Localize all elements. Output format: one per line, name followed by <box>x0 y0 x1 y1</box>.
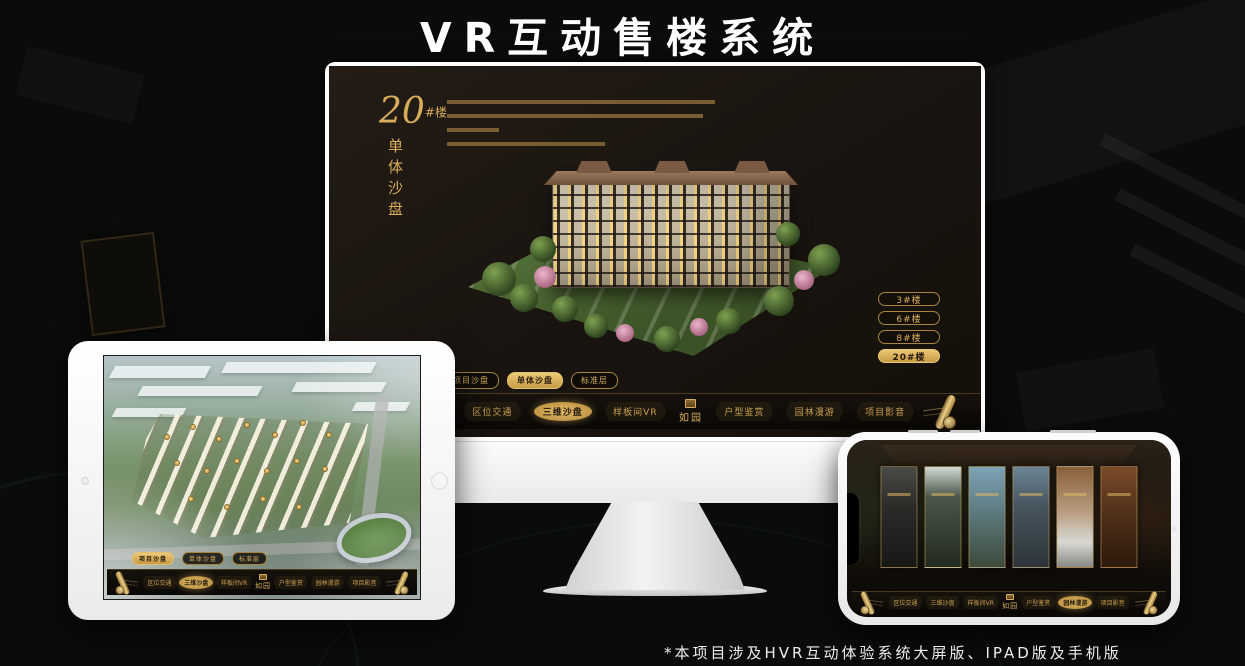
scene-panel-autumn[interactable] <box>1057 466 1094 568</box>
floor-button-6[interactable]: 6#楼 <box>878 311 940 325</box>
phone-camera <box>1172 526 1177 531</box>
scene-panel-tower[interactable] <box>1013 466 1050 568</box>
model-tree-pink <box>690 318 708 336</box>
scene-panel-gate[interactable] <box>881 466 918 568</box>
tablet-device: 项目沙盘 单体沙盘 标准层 区位交通 三维沙盘 样板间VR 如园 户型鉴赏 园林… <box>68 341 455 620</box>
tab-single-sandtable[interactable]: 单体沙盘 <box>182 552 224 565</box>
nav-item-showroom-vr[interactable]: 样板间VR <box>216 576 252 589</box>
building-marker[interactable] <box>174 460 180 466</box>
nav-item-unit-gallery[interactable]: 户型鉴赏 <box>274 576 308 589</box>
description-line <box>447 100 715 104</box>
scroll-menu-icon[interactable] <box>389 572 409 594</box>
aerial-building <box>137 386 262 396</box>
model-tree <box>530 236 556 262</box>
nav-item-3d-sandtable[interactable]: 三维沙盘 <box>179 576 213 589</box>
bg-road-strip <box>1130 243 1245 359</box>
brand-logo-icon <box>1006 594 1014 600</box>
model-tree <box>808 244 840 276</box>
building-marker[interactable] <box>234 458 240 464</box>
model-facade <box>552 182 790 288</box>
scene-panel-masterplan[interactable] <box>969 466 1006 568</box>
headline-number: 20 <box>379 91 425 132</box>
model-tree-pink <box>616 324 634 342</box>
model-tree <box>716 308 742 334</box>
nav-item-garden-tour[interactable]: 园林漫游 <box>786 402 844 421</box>
model-tree <box>510 284 538 312</box>
phone-nav-bar: 区位交通 三维沙盘 样板间VR 如园 户型鉴赏 园林漫游 项目影音 <box>852 591 1166 613</box>
scroll-menu-icon[interactable] <box>115 572 135 594</box>
headline-suffix: #楼 <box>425 106 447 120</box>
tablet-tab-row: 项目沙盘 单体沙盘 标准层 <box>132 552 267 565</box>
nav-item-unit-gallery[interactable]: 户型鉴赏 <box>1021 596 1055 609</box>
tablet-home-button[interactable] <box>431 472 448 489</box>
tablet-screen: 项目沙盘 单体沙盘 标准层 区位交通 三维沙盘 样板间VR 如园 户型鉴赏 园林… <box>103 355 421 600</box>
description-line <box>447 142 605 146</box>
description-text-block <box>447 100 715 156</box>
phone-notch <box>847 493 859 565</box>
aerial-residential-complex[interactable] <box>132 414 368 538</box>
nav-item-project-video[interactable]: 项目影音 <box>1096 596 1130 609</box>
building-marker[interactable] <box>294 458 300 464</box>
building-model[interactable] <box>464 166 844 366</box>
phone-volume-button <box>950 430 980 433</box>
model-tree-pink <box>534 266 556 288</box>
building-marker[interactable] <box>322 466 328 472</box>
model-tree-pink <box>794 270 814 290</box>
aerial-building <box>221 362 377 373</box>
description-line <box>447 128 499 132</box>
building-marker[interactable] <box>204 468 210 474</box>
model-building <box>552 182 790 288</box>
nav-item-project-video[interactable]: 项目影音 <box>347 576 381 589</box>
bg-signboard <box>80 232 165 336</box>
nav-item-garden-tour[interactable]: 园林漫游 <box>311 576 345 589</box>
page-title: VR互动售楼系统 <box>0 4 1245 64</box>
tab-standard-floor[interactable]: 标准层 <box>232 552 267 565</box>
building-marker[interactable] <box>224 504 230 510</box>
description-line <box>447 114 703 118</box>
phone-power-button <box>1050 430 1096 433</box>
building-marker[interactable] <box>272 432 278 438</box>
brand-logo[interactable]: 如园 <box>1002 594 1018 611</box>
brand-logo[interactable]: 如园 <box>679 399 703 424</box>
model-tree <box>764 286 794 316</box>
building-marker[interactable] <box>260 496 266 502</box>
headline-block: 20#楼 单体沙盘 <box>379 94 447 222</box>
brand-logo[interactable]: 如园 <box>255 574 271 591</box>
tab-single-sandtable[interactable]: 单体沙盘 <box>507 372 563 389</box>
nav-item-3d-sandtable[interactable]: 三维沙盘 <box>534 402 592 421</box>
phone-volume-button <box>908 430 938 433</box>
bg-building-block <box>1016 348 1164 431</box>
brand-logo-text: 如园 <box>255 581 271 591</box>
headline-subtitle: 单体沙盘 <box>385 138 406 222</box>
nav-item-unit-gallery[interactable]: 户型鉴赏 <box>715 402 773 421</box>
building-marker[interactable] <box>190 424 196 430</box>
brand-logo-icon <box>685 399 696 408</box>
model-roof-cap <box>576 161 612 173</box>
brand-logo-text: 如园 <box>679 409 703 424</box>
phone-device: 区位交通 三维沙盘 样板间VR 如园 户型鉴赏 园林漫游 项目影音 <box>838 432 1180 625</box>
promo-canvas: VR互动售楼系统 20#楼 单体沙盘 <box>0 0 1245 666</box>
model-tree <box>654 326 680 352</box>
model-roof-cap <box>654 161 690 173</box>
tab-standard-floor[interactable]: 标准层 <box>571 372 618 389</box>
tablet-nav-bar: 区位交通 三维沙盘 样板间VR 如园 户型鉴赏 园林漫游 项目影音 <box>107 569 417 595</box>
floor-button-8[interactable]: 8#楼 <box>878 330 940 344</box>
scene-panel-gallery <box>881 466 1138 568</box>
model-tree <box>552 296 578 322</box>
floor-button-group: 3#楼 6#楼 8#楼 20#楼 <box>878 292 940 363</box>
brand-logo-icon <box>259 574 267 580</box>
building-marker[interactable] <box>296 504 302 510</box>
model-roof <box>544 171 798 185</box>
phone-screen: 区位交通 三维沙盘 样板间VR 如园 户型鉴赏 园林漫游 项目影音 <box>847 440 1171 617</box>
brand-logo-text: 如园 <box>1002 601 1018 611</box>
nav-item-garden-tour[interactable]: 园林漫游 <box>1058 596 1092 609</box>
nav-item-location[interactable]: 区位交通 <box>463 402 521 421</box>
scroll-menu-icon[interactable] <box>860 592 880 614</box>
nav-item-project-video[interactable]: 项目影音 <box>856 402 914 421</box>
model-tree <box>776 222 800 246</box>
building-marker[interactable] <box>300 420 306 426</box>
floor-button-3[interactable]: 3#楼 <box>878 292 940 306</box>
nav-item-location[interactable]: 区位交通 <box>143 576 177 589</box>
nav-item-3d-sandtable[interactable]: 三维沙盘 <box>925 596 959 609</box>
scroll-menu-icon[interactable] <box>1138 592 1158 614</box>
tablet-camera <box>81 477 89 485</box>
scene-panel-interior[interactable] <box>1101 466 1138 568</box>
aerial-building <box>291 382 386 392</box>
model-roof-cap <box>734 161 770 173</box>
tab-project-sandtable[interactable]: 项目沙盘 <box>132 552 174 565</box>
building-marker[interactable] <box>326 432 332 438</box>
building-marker[interactable] <box>264 468 270 474</box>
building-marker[interactable] <box>216 436 222 442</box>
building-marker[interactable] <box>244 422 250 428</box>
nav-item-showroom-vr[interactable]: 样板间VR <box>963 596 999 609</box>
monitor-tab-row: 项目沙盘 单体沙盘 标准层 <box>443 372 618 389</box>
model-tree <box>584 314 608 338</box>
monitor-stand <box>565 502 745 590</box>
building-marker[interactable] <box>164 434 170 440</box>
scene-panel-courtyard[interactable] <box>925 466 962 568</box>
footnote-text: *本项目涉及HVR互动体验系统大屏版、IPAD版及手机版 <box>664 642 1122 663</box>
nav-item-location[interactable]: 区位交通 <box>888 596 922 609</box>
floor-button-20[interactable]: 20#楼 <box>878 349 940 363</box>
building-marker[interactable] <box>188 496 194 502</box>
aerial-building <box>109 366 211 378</box>
nav-item-showroom-vr[interactable]: 样板间VR <box>604 402 666 421</box>
scroll-menu-icon[interactable] <box>927 396 957 428</box>
